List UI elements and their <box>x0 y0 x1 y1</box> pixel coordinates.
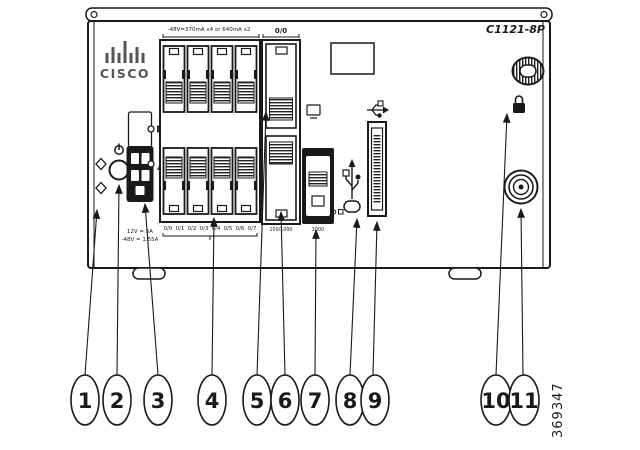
callout-number: 3 <box>151 389 166 413</box>
lan-port-id: 0/1 <box>176 226 185 232</box>
callout-7: 7 <box>301 375 329 425</box>
callout-number: 11 <box>509 389 538 413</box>
rj45-port <box>236 148 257 214</box>
callout-4: 4 <box>198 375 226 425</box>
callout-number: 9 <box>368 389 383 413</box>
rj45-port <box>236 46 257 112</box>
callout-number: 4 <box>205 389 220 413</box>
lan-port-id: 0/4 <box>212 226 221 232</box>
callout-number: 8 <box>343 389 358 413</box>
dc-rating-label-2: -48V = 1.55A <box>122 237 159 243</box>
lan-port-id: 0/3 <box>200 226 209 232</box>
router-rear-panel-diagram: CISCO 12V = 5A -48V = 1.55A -48V=370mA x… <box>0 0 640 450</box>
lan-port-id: 0/7 <box>248 226 257 232</box>
callout-number: 2 <box>110 389 125 413</box>
lan-switch-ports <box>160 40 260 222</box>
wan-ge-port-top <box>266 44 296 128</box>
sfp-speed-label: 1000 <box>312 227 325 233</box>
corner-screw-icon <box>91 12 97 18</box>
callout-10: 10 <box>481 375 511 425</box>
rj45-port <box>164 148 185 214</box>
brand-text: CISCO <box>100 66 150 81</box>
callout-3: 3 <box>144 375 172 425</box>
rj45-port <box>164 46 185 112</box>
callout-circles: 1 2 3 4 5 6 7 8 <box>71 375 539 425</box>
mounting-foot <box>449 268 481 279</box>
model-label: C1121-8P <box>486 23 545 36</box>
callout-11: 11 <box>509 375 539 425</box>
rj45-port <box>188 46 209 112</box>
callout-1: 1 <box>71 375 99 425</box>
figure-id: 369347 <box>551 382 566 438</box>
callout-5: 5 <box>243 375 271 425</box>
mounting-foot <box>133 268 165 279</box>
antenna-connector <box>505 171 538 204</box>
callout-6: 6 <box>271 375 299 425</box>
wan-ge-port-bottom <box>266 136 296 220</box>
led-icon <box>148 126 154 132</box>
rj45-port <box>188 148 209 214</box>
wan-port-id-label: 0/0 <box>275 27 287 35</box>
blank-slot <box>331 43 374 74</box>
callout-9: 9 <box>361 375 389 425</box>
callout-2: 2 <box>103 375 131 425</box>
wan-ge-ports: 100/1000 <box>262 40 300 233</box>
lan-port-id: 0/5 <box>224 226 233 232</box>
poe-rating-label: -48V=370mA x4 or 640mA x2 <box>168 27 251 33</box>
dc-rating-label: 12V = 5A <box>127 229 153 235</box>
callout-number: 10 <box>481 389 510 413</box>
lan-port-id: 0/2 <box>188 226 197 232</box>
lan-port-id: 0/0 <box>164 226 173 232</box>
led-icon <box>148 161 154 167</box>
lan-port-id: 0/6 <box>236 226 245 232</box>
callout-number: 7 <box>308 389 323 413</box>
corner-screw-icon <box>541 12 547 18</box>
rj45-port <box>212 46 233 112</box>
callout-8: 8 <box>336 375 364 425</box>
rj45-port <box>212 148 233 214</box>
callout-number: 5 <box>250 389 265 413</box>
callout-number: 1 <box>78 389 93 413</box>
callout-number: 6 <box>278 389 293 413</box>
